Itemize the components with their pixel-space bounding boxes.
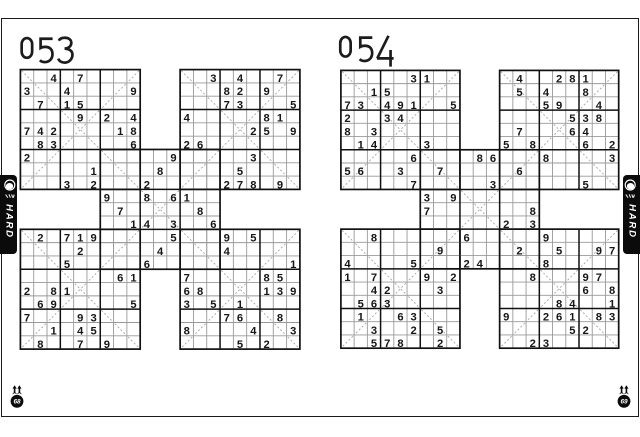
svg-text:5: 5 xyxy=(556,245,562,257)
svg-text:4: 4 xyxy=(583,126,590,138)
svg-text:5: 5 xyxy=(77,99,83,111)
svg-text:8: 8 xyxy=(543,153,549,165)
svg-text:5: 5 xyxy=(516,87,522,99)
svg-text:9: 9 xyxy=(596,245,602,257)
svg-text:8: 8 xyxy=(583,87,589,99)
svg-text:7: 7 xyxy=(424,206,430,218)
svg-text:5: 5 xyxy=(450,100,456,112)
svg-text:4: 4 xyxy=(144,219,151,231)
svg-text:6: 6 xyxy=(210,219,216,231)
svg-text:7: 7 xyxy=(277,73,283,85)
svg-text:8: 8 xyxy=(609,285,615,297)
svg-text:3: 3 xyxy=(51,139,57,151)
svg-text:5: 5 xyxy=(250,233,256,245)
svg-text:9: 9 xyxy=(90,233,96,245)
svg-text:2: 2 xyxy=(556,74,562,86)
svg-text:5: 5 xyxy=(237,339,243,351)
svg-text:1: 1 xyxy=(569,312,575,324)
svg-text:1: 1 xyxy=(130,272,136,284)
svg-text:8: 8 xyxy=(344,126,350,138)
svg-text:3: 3 xyxy=(184,299,190,311)
svg-text:3: 3 xyxy=(543,338,549,350)
svg-text:8: 8 xyxy=(264,113,270,125)
svg-text:4: 4 xyxy=(77,326,84,338)
svg-text:7: 7 xyxy=(516,126,522,138)
svg-text:2: 2 xyxy=(530,338,536,350)
svg-text:9: 9 xyxy=(224,233,230,245)
svg-text:6: 6 xyxy=(358,166,364,178)
svg-text:9: 9 xyxy=(104,339,110,351)
svg-text:8: 8 xyxy=(37,139,43,151)
svg-text:8: 8 xyxy=(264,272,270,284)
svg-text:68: 68 xyxy=(13,399,21,406)
svg-text:4: 4 xyxy=(384,100,391,112)
svg-text:5: 5 xyxy=(264,126,270,138)
svg-text:4: 4 xyxy=(371,140,378,152)
svg-text:7: 7 xyxy=(384,338,390,350)
svg-text:5: 5 xyxy=(237,166,243,178)
svg-text:5: 5 xyxy=(344,166,350,178)
svg-text:3: 3 xyxy=(250,153,256,165)
svg-text:7: 7 xyxy=(24,126,30,138)
svg-text:2: 2 xyxy=(450,272,456,284)
svg-text:5: 5 xyxy=(170,233,176,245)
svg-text:9: 9 xyxy=(503,312,509,324)
svg-text:3: 3 xyxy=(384,113,390,125)
svg-text:6: 6 xyxy=(556,312,562,324)
svg-text:6: 6 xyxy=(371,298,377,310)
svg-text:4: 4 xyxy=(51,73,58,85)
svg-text:8: 8 xyxy=(277,312,283,324)
svg-text:6: 6 xyxy=(144,259,150,271)
svg-text:8: 8 xyxy=(250,179,256,191)
svg-text:3: 3 xyxy=(358,100,364,112)
svg-text:1: 1 xyxy=(77,233,83,245)
svg-text:5: 5 xyxy=(277,272,283,284)
svg-text:6: 6 xyxy=(463,232,469,244)
svg-text:69: 69 xyxy=(620,399,628,406)
svg-text:5: 5 xyxy=(90,326,96,338)
svg-text:3: 3 xyxy=(583,113,589,125)
svg-text:1: 1 xyxy=(290,259,296,271)
svg-text:5: 5 xyxy=(569,325,575,337)
svg-text:4: 4 xyxy=(516,74,523,86)
svg-text:2: 2 xyxy=(104,113,110,125)
svg-text:6: 6 xyxy=(583,285,589,297)
svg-text:1: 1 xyxy=(583,74,589,86)
svg-text:4: 4 xyxy=(224,246,231,258)
svg-text:4: 4 xyxy=(569,298,576,310)
svg-text:1: 1 xyxy=(90,166,96,178)
svg-text:1: 1 xyxy=(237,299,243,311)
svg-text:8: 8 xyxy=(556,298,562,310)
svg-text:6: 6 xyxy=(170,193,176,205)
svg-text:1: 1 xyxy=(64,286,70,298)
svg-text:1: 1 xyxy=(371,87,377,99)
svg-text:3: 3 xyxy=(371,126,377,138)
svg-text:3: 3 xyxy=(237,99,243,111)
svg-text:6: 6 xyxy=(397,312,403,324)
svg-text:4: 4 xyxy=(371,285,378,297)
svg-text:4: 4 xyxy=(596,100,603,112)
svg-text:2: 2 xyxy=(463,259,469,271)
svg-text:8: 8 xyxy=(224,86,230,98)
svg-text:2: 2 xyxy=(609,140,615,152)
svg-text:3: 3 xyxy=(170,219,176,231)
svg-text:3: 3 xyxy=(384,298,390,310)
svg-text:8: 8 xyxy=(130,126,136,138)
svg-text:9: 9 xyxy=(277,179,283,191)
svg-text:3: 3 xyxy=(24,86,30,98)
svg-text:9: 9 xyxy=(170,153,176,165)
svg-text:1: 1 xyxy=(51,326,57,338)
svg-text:7: 7 xyxy=(184,272,190,284)
svg-text:5: 5 xyxy=(543,100,549,112)
svg-text:4: 4 xyxy=(37,126,44,138)
svg-text:2: 2 xyxy=(51,126,57,138)
svg-text:8: 8 xyxy=(397,338,403,350)
svg-text:2: 2 xyxy=(264,339,270,351)
svg-text:8: 8 xyxy=(51,286,57,298)
svg-text:2: 2 xyxy=(224,179,230,191)
svg-text:5: 5 xyxy=(358,298,364,310)
svg-text:6: 6 xyxy=(490,153,496,165)
svg-text:4: 4 xyxy=(344,259,351,271)
svg-text:4: 4 xyxy=(130,113,137,125)
svg-text:5: 5 xyxy=(583,179,589,191)
svg-text:4: 4 xyxy=(237,73,244,85)
svg-text:4: 4 xyxy=(184,113,191,125)
svg-text:2: 2 xyxy=(543,312,549,324)
svg-text:5: 5 xyxy=(569,113,575,125)
svg-text:8: 8 xyxy=(530,206,536,218)
svg-text:6: 6 xyxy=(237,312,243,324)
svg-text:7: 7 xyxy=(371,272,377,284)
svg-text:8: 8 xyxy=(157,166,163,178)
svg-text:2: 2 xyxy=(344,113,350,125)
svg-text:1: 1 xyxy=(117,126,123,138)
svg-text:8: 8 xyxy=(371,232,377,244)
svg-text:9: 9 xyxy=(556,100,562,112)
svg-text:7: 7 xyxy=(237,179,243,191)
svg-text:9: 9 xyxy=(424,272,430,284)
svg-text:2: 2 xyxy=(583,325,589,337)
svg-text:4: 4 xyxy=(397,113,404,125)
svg-text:3: 3 xyxy=(90,312,96,324)
svg-text:7: 7 xyxy=(117,206,123,218)
svg-text:1: 1 xyxy=(358,140,364,152)
svg-text:9: 9 xyxy=(77,113,83,125)
svg-text:1: 1 xyxy=(358,312,364,324)
svg-text:2: 2 xyxy=(144,179,150,191)
svg-text:9: 9 xyxy=(130,86,136,98)
svg-text:3: 3 xyxy=(64,179,70,191)
svg-text:4: 4 xyxy=(250,326,257,338)
svg-text:8: 8 xyxy=(596,312,602,324)
svg-text:9: 9 xyxy=(290,286,296,298)
svg-text:8: 8 xyxy=(197,206,203,218)
svg-text:1: 1 xyxy=(184,193,190,205)
svg-text:1: 1 xyxy=(130,219,136,231)
svg-text:1: 1 xyxy=(64,99,70,111)
svg-text:3: 3 xyxy=(530,219,536,231)
svg-text:2: 2 xyxy=(503,219,509,231)
svg-text:6: 6 xyxy=(37,299,43,311)
svg-text:7: 7 xyxy=(224,99,230,111)
svg-text:5: 5 xyxy=(437,325,443,337)
svg-text:1: 1 xyxy=(424,74,430,86)
svg-text:6: 6 xyxy=(411,153,417,165)
svg-text:3: 3 xyxy=(210,73,216,85)
svg-text:5: 5 xyxy=(64,259,70,271)
svg-text:1: 1 xyxy=(277,113,283,125)
svg-text:7: 7 xyxy=(77,339,83,351)
svg-text:8: 8 xyxy=(184,326,190,338)
svg-text:2: 2 xyxy=(250,126,256,138)
svg-text:8: 8 xyxy=(569,74,575,86)
svg-text:2: 2 xyxy=(24,286,30,298)
svg-text:7: 7 xyxy=(224,312,230,324)
svg-text:4: 4 xyxy=(543,87,550,99)
svg-text:6: 6 xyxy=(569,126,575,138)
svg-text:4: 4 xyxy=(477,259,484,271)
svg-text:5: 5 xyxy=(210,299,216,311)
svg-text:9: 9 xyxy=(583,272,589,284)
svg-text:4: 4 xyxy=(157,246,164,258)
svg-text:2: 2 xyxy=(411,325,417,337)
svg-text:8: 8 xyxy=(37,339,43,351)
svg-text:1: 1 xyxy=(344,272,350,284)
svg-text:2: 2 xyxy=(90,179,96,191)
svg-text:9: 9 xyxy=(264,86,270,98)
svg-text:3: 3 xyxy=(424,193,430,205)
svg-text:3: 3 xyxy=(277,286,283,298)
svg-text:9: 9 xyxy=(450,193,456,205)
svg-text:8: 8 xyxy=(596,113,602,125)
svg-text:5: 5 xyxy=(371,338,377,350)
svg-text:3: 3 xyxy=(437,285,443,297)
svg-text:5: 5 xyxy=(384,87,390,99)
svg-text:5: 5 xyxy=(130,299,136,311)
svg-text:4: 4 xyxy=(64,86,71,98)
svg-text:8: 8 xyxy=(543,259,549,271)
svg-text:3: 3 xyxy=(397,166,403,178)
svg-text:7: 7 xyxy=(77,73,83,85)
svg-text:3: 3 xyxy=(371,325,377,337)
svg-text:3: 3 xyxy=(411,312,417,324)
svg-text:3: 3 xyxy=(609,153,615,165)
svg-text:9: 9 xyxy=(51,299,57,311)
svg-text:1: 1 xyxy=(609,298,615,310)
svg-text:9: 9 xyxy=(543,232,549,244)
svg-text:1: 1 xyxy=(411,100,417,112)
svg-text:6: 6 xyxy=(583,140,589,152)
svg-text:9: 9 xyxy=(290,126,296,138)
svg-text:5: 5 xyxy=(290,99,296,111)
svg-text:7: 7 xyxy=(24,312,30,324)
svg-text:7: 7 xyxy=(37,99,43,111)
svg-text:2: 2 xyxy=(24,153,30,165)
svg-text:8: 8 xyxy=(477,153,483,165)
svg-text:2: 2 xyxy=(437,338,443,350)
svg-text:7: 7 xyxy=(344,100,350,112)
svg-text:2: 2 xyxy=(384,285,390,297)
svg-text:8: 8 xyxy=(144,193,150,205)
svg-text:8: 8 xyxy=(197,286,203,298)
svg-text:3: 3 xyxy=(490,179,496,191)
svg-text:6: 6 xyxy=(117,272,123,284)
svg-text:7: 7 xyxy=(596,272,602,284)
svg-text:5: 5 xyxy=(411,259,417,271)
svg-text:2: 2 xyxy=(37,233,43,245)
svg-text:2: 2 xyxy=(237,86,243,98)
svg-text:3: 3 xyxy=(411,74,417,86)
svg-text:9: 9 xyxy=(77,312,83,324)
svg-text:6: 6 xyxy=(184,286,190,298)
svg-text:9: 9 xyxy=(104,193,110,205)
svg-text:8: 8 xyxy=(530,272,536,284)
svg-text:7: 7 xyxy=(411,179,417,191)
svg-text:1: 1 xyxy=(264,286,270,298)
svg-text:9: 9 xyxy=(397,100,403,112)
svg-text:3: 3 xyxy=(290,326,296,338)
svg-text:7: 7 xyxy=(64,233,70,245)
svg-text:2: 2 xyxy=(77,246,83,258)
svg-text:3: 3 xyxy=(609,312,615,324)
svg-text:7: 7 xyxy=(609,245,615,257)
